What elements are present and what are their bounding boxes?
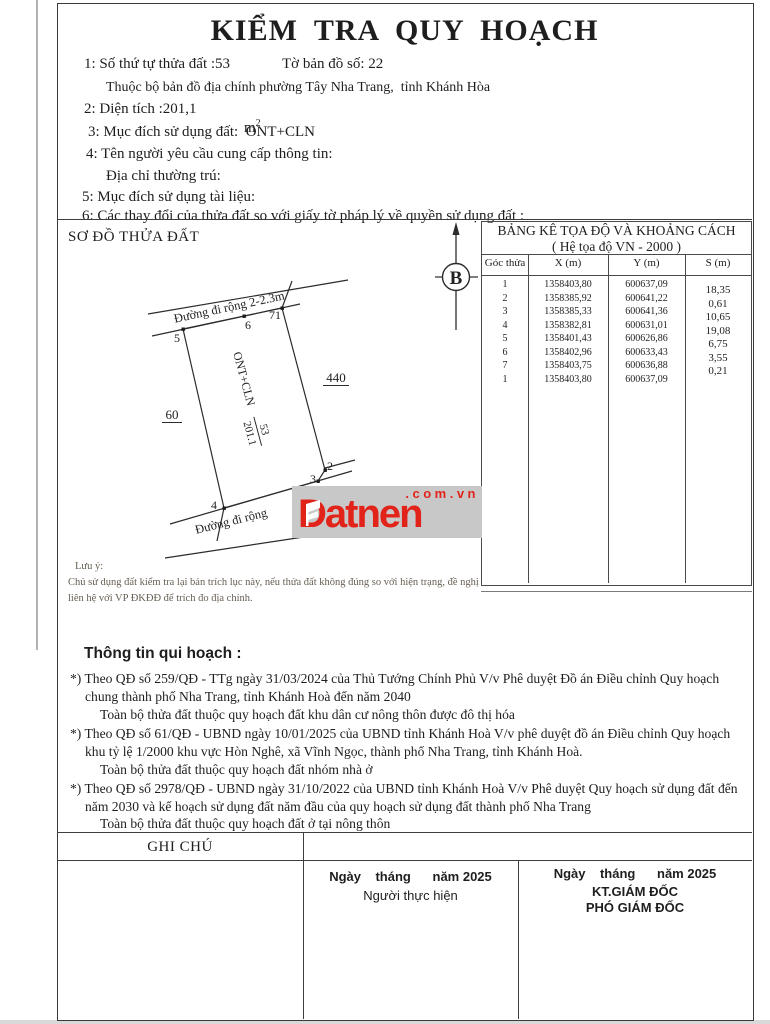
row-x: 1358402,96 (528, 347, 608, 358)
field-map-sheet: Tờ bản đồ số: 22 (282, 56, 383, 73)
vertex-dots (182, 307, 327, 510)
planning-line: *) Theo QĐ số 259/QĐ - TTg ngày 31/03/20… (70, 671, 719, 687)
row-y: 600626,86 (608, 333, 685, 344)
row-y: 600633,43 (608, 347, 685, 358)
footer-divider-1 (303, 832, 304, 1019)
footer-mid-date: Ngày tháng năm 2025 (303, 869, 518, 884)
planning-line: *) Theo QĐ số 61/QĐ - UBND ngày 10/01/20… (70, 726, 730, 742)
north-arrow-icon: B (435, 222, 478, 330)
row-point: 4 (482, 320, 528, 331)
row-x: 1358385,92 (528, 293, 608, 304)
row-y: 600641,22 (608, 293, 685, 304)
row-point: 6 (482, 347, 528, 358)
planning-line: Toàn bộ thửa đất thuộc quy hoạch đất ở t… (100, 816, 390, 832)
row-point: 1 (482, 374, 528, 385)
parcel-use-label: ONT+CLN (230, 350, 258, 407)
scanned-document-page: KIỂM TRA QUY HOẠCH 1: Số thứ tự thửa đất… (0, 0, 770, 1024)
row-point: 7 (482, 360, 528, 371)
planning-line: khu tỷ lệ 1/2000 khu vực Hòn Nghê, xã Vĩ… (85, 744, 583, 760)
row-x: 1358403,75 (528, 360, 608, 371)
adjacent-parcel-left: 60 (166, 407, 179, 422)
coordinate-table-title: BẢNG KÊ TỌA ĐỘ VÀ KHOẢNG CÁCH ( Hệ tọa đ… (482, 222, 751, 255)
field-doc-purpose: 5: Mục đích sử dụng tài liệu: (82, 189, 255, 206)
planning-section-title: Thông tin qui hoạch : (84, 645, 242, 663)
row-x: 1358401,43 (528, 333, 608, 344)
footer-right-role-1: KT.GIÁM ĐỐC (518, 884, 752, 899)
col-divider-1 (528, 255, 529, 583)
watermark-logo-icon (298, 496, 332, 534)
parcel-diagram: 5 6 71 2 3 4 60 440 Đường đi rộng 2-2.3m… (57, 220, 481, 600)
row-point: 3 (482, 306, 528, 317)
note-label: Lưu ý: (75, 561, 103, 572)
north-label: B (450, 268, 463, 289)
planning-line: chung thành phố Nha Trang, tỉnh Khánh Ho… (85, 689, 411, 705)
note-line-1: Chủ sử dụng đất kiểm tra lại bản trích l… (68, 577, 479, 588)
table-title-line2: ( Hệ tọa độ VN - 2000 ) (482, 239, 751, 255)
col-header-point: Góc thửa (482, 257, 528, 269)
row-y: 600636,88 (608, 360, 685, 371)
distance-value: 0,61 (685, 298, 751, 310)
footer-top-line (57, 832, 752, 833)
watermark: .com.vn Datnen (292, 486, 482, 538)
header-divider (482, 275, 751, 276)
row-y: 600631,01 (608, 320, 685, 331)
field-area: 2: Diện tích :201,1 (84, 101, 197, 118)
distance-value: 0,21 (685, 365, 751, 377)
planning-line: Toàn bộ thửa đất thuộc quy hoạch đất khu… (100, 707, 515, 723)
row-y: 600637,09 (608, 374, 685, 385)
footer-mid-role: Người thực hiện (303, 888, 518, 903)
planning-line: năm 2030 và kế hoạch sử dụng đất năm đầu… (85, 799, 591, 815)
row-x: 1358403,80 (528, 374, 608, 385)
field-address: Địa chỉ thường trú: (106, 168, 221, 185)
distance-value: 10,65 (685, 311, 751, 323)
footer-right-date: Ngày tháng năm 2025 (518, 866, 752, 881)
vertex-label-71: 71 (269, 308, 281, 322)
row-x: 1358403,80 (528, 279, 608, 290)
note-line-2: liên hệ với VP ĐKĐĐ để trích đo địa chín… (68, 593, 253, 604)
distance-value: 3,55 (685, 352, 751, 364)
planning-line: Toàn bộ thửa đất thuộc quy hoạch đất nhó… (100, 762, 373, 778)
col-header-s: S (m) (685, 257, 751, 269)
road-bottom-label: Đường đi rộng (194, 505, 270, 537)
row-point: 2 (482, 293, 528, 304)
row-point: 5 (482, 333, 528, 344)
footer-right-role-2: PHÓ GIÁM ĐỐC (518, 900, 752, 915)
row-x: 1358382,81 (528, 320, 608, 331)
coordinate-table: BẢNG KÊ TỌA ĐỘ VÀ KHOẢNG CÁCH ( Hệ tọa đ… (481, 221, 752, 586)
vertex-label-2: 2 (327, 459, 333, 473)
page-title: KIỂM TRA QUY HOẠCH (57, 14, 752, 48)
vertex-label-5: 5 (174, 331, 180, 345)
vertex-label-4: 4 (211, 498, 217, 512)
table-title-line1: BẢNG KÊ TỌA ĐỘ VÀ KHOẢNG CÁCH (482, 223, 751, 239)
parcel-polygon (183, 308, 325, 508)
footer-note-header: GHI CHÚ (57, 839, 303, 856)
row-point: 1 (482, 279, 528, 290)
distance-value: 6,75 (685, 338, 751, 350)
distance-value: 19,08 (685, 325, 751, 337)
vertex-label-3: 3 (310, 472, 316, 486)
footer-header-line (57, 860, 752, 861)
field-map-belongs: Thuộc bộ bản đồ địa chính phường Tây Nha… (106, 80, 490, 96)
col-header-y: Y (m) (608, 257, 685, 269)
row-x: 1358385,33 (528, 306, 608, 317)
row-y: 600641,36 (608, 306, 685, 317)
vertex-label-6: 6 (245, 318, 251, 332)
coordinate-table-body: Góc thửa X (m) Y (m) S (m) 1 1358403,80 … (482, 255, 751, 583)
field-land-use: 3: Mục đích sử dụng đất: ONT+CLN (88, 124, 315, 141)
col-header-x: X (m) (528, 257, 608, 269)
planning-line: *) Theo QĐ số 2978/QĐ - UBND ngày 31/10/… (70, 781, 738, 797)
field-requester: 4: Tên người yêu cầu cung cấp thông tin: (86, 146, 333, 163)
distance-value: 18,35 (685, 284, 751, 296)
field-parcel-number: 1: Số thứ tự thửa đất :53 (84, 56, 230, 73)
scan-edge-line (36, 0, 38, 650)
col-divider-2 (608, 255, 609, 583)
row-y: 600637,09 (608, 279, 685, 290)
adjacent-parcel-right: 440 (326, 370, 346, 385)
table-section-bottom-line (481, 591, 752, 592)
parcel-center-label: ONT+CLN 53 201.1 (222, 349, 273, 450)
